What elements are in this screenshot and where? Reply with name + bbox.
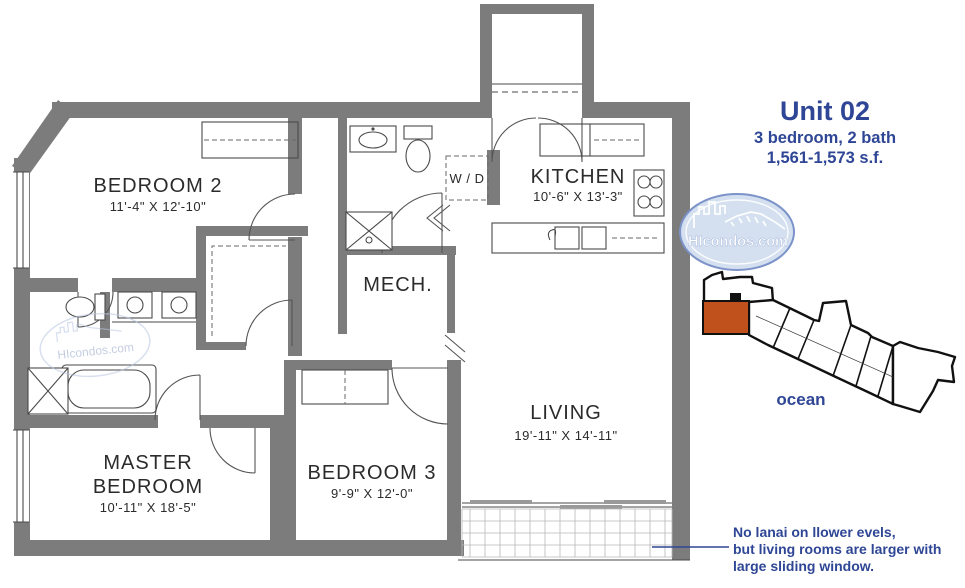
note-line2: but living rooms are larger with xyxy=(733,541,941,557)
building-locator: ocean xyxy=(703,272,955,412)
living-dims: 19'-11" X 14'-11" xyxy=(514,428,617,443)
living-label: LIVING xyxy=(530,402,602,424)
toilet-master xyxy=(66,294,105,320)
stove-icon xyxy=(634,170,664,216)
sliding-window xyxy=(462,500,672,509)
kitchen-counter-sink xyxy=(492,223,664,253)
sink-bath2 xyxy=(350,126,396,152)
title-block: Unit 02 3 bedroom, 2 bath 1,561-1,573 s.… xyxy=(754,96,896,167)
kitchen-upper-cabinets xyxy=(540,124,644,156)
closet-bedroom2 xyxy=(202,122,298,158)
note-line3: large sliding window. xyxy=(733,558,874,574)
kitchen-dims: 10'-6" X 13'-3" xyxy=(533,189,623,204)
logo-text: HIcondos.com xyxy=(688,234,788,250)
locator-unit-highlight xyxy=(703,301,749,334)
double-sinks-master xyxy=(112,292,196,322)
shower-bath2 xyxy=(346,212,392,250)
bathtub-master xyxy=(62,365,156,413)
window-left-master xyxy=(13,430,29,522)
wd-label: W / D xyxy=(450,171,485,186)
note-line1: No lanai on llower evels, xyxy=(733,524,896,540)
closet-bedroom3 xyxy=(302,370,388,404)
unit-title: Unit 02 xyxy=(780,96,870,126)
master-label-line1: MASTER xyxy=(103,452,192,474)
closet-walkin xyxy=(212,246,286,336)
master-label-line2: BEDROOM xyxy=(93,476,203,498)
unit-specs: 3 bedroom, 2 bath xyxy=(754,129,896,147)
unit-size: 1,561-1,573 s.f. xyxy=(767,149,884,167)
bedroom2-label: BEDROOM 2 xyxy=(93,175,222,197)
floor-plan-canvas: BEDROOM 2 11'-4" X 12'-10" KITCHEN 10'-6… xyxy=(0,0,965,588)
note-block: No lanai on llower evels, but living roo… xyxy=(652,524,941,574)
kitchen-label: KITCHEN xyxy=(531,166,626,188)
floorplan-page: BEDROOM 2 11'-4" X 12'-10" KITCHEN 10'-6… xyxy=(0,0,965,588)
entry-double-doors xyxy=(492,84,582,162)
bedroom2-dims: 11'-4" X 12'-10" xyxy=(110,199,206,214)
bedroom3-label: BEDROOM 3 xyxy=(307,462,436,484)
mech-label: MECH. xyxy=(363,274,432,296)
toilet-bath2 xyxy=(404,126,432,172)
master-dims: 10'-11" X 18'-5" xyxy=(100,500,196,515)
lanai-tile-floor xyxy=(458,509,690,560)
shower-master xyxy=(28,368,68,414)
hicondos-logo: HIcondos.com xyxy=(680,194,794,270)
bedroom3-dims: 9'-9" X 12'-0" xyxy=(331,486,413,501)
ocean-label: ocean xyxy=(776,390,825,409)
window-left-bedroom2 xyxy=(13,172,29,268)
svg-text:HIcondos.com: HIcondos.com xyxy=(57,340,135,362)
